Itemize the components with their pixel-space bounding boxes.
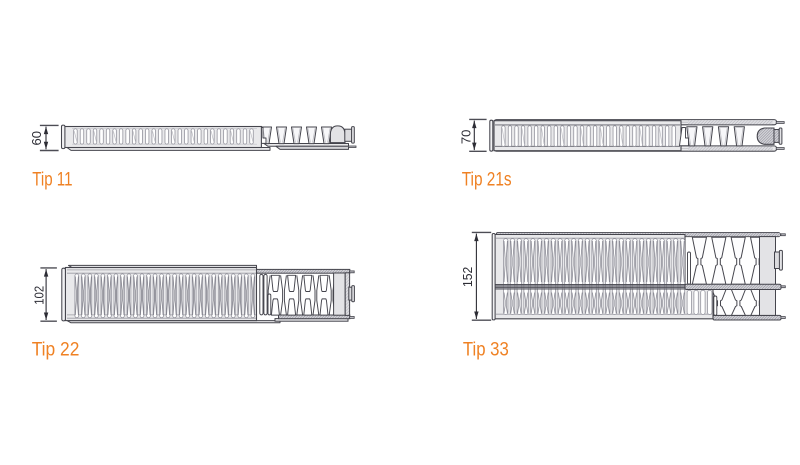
svg-text:Tip 11: Tip 11 xyxy=(32,169,72,190)
svg-text:Tip 22: Tip 22 xyxy=(32,339,80,360)
svg-text:Tip 33: Tip 33 xyxy=(463,339,509,360)
svg-text:Tip 21s: Tip 21s xyxy=(462,169,512,190)
svg-text:70: 70 xyxy=(459,130,474,145)
svg-text:60: 60 xyxy=(29,131,44,146)
svg-text:152: 152 xyxy=(460,267,475,287)
svg-text:102: 102 xyxy=(31,286,46,305)
